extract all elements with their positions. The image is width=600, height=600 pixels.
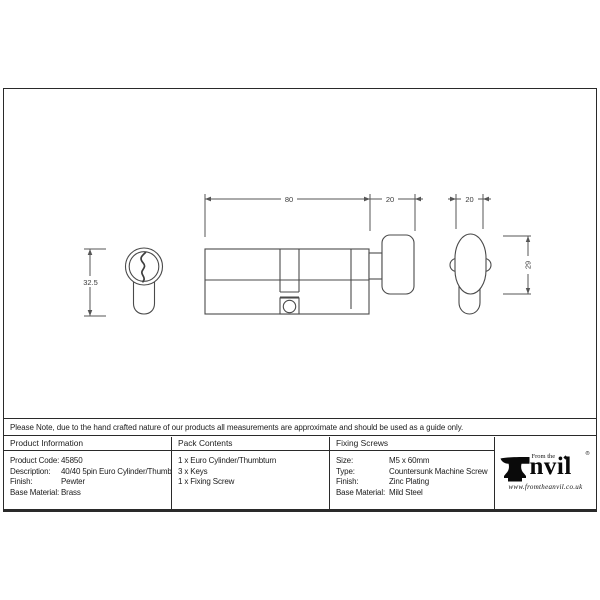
row-value: Countersunk Machine Screw: [389, 467, 488, 478]
disclaimer-bar: Please Note, due to the hand crafted nat…: [4, 418, 596, 436]
pack-item: 1 x Fixing Screw: [178, 477, 330, 488]
fixing-screw-hole: [283, 300, 295, 312]
row-value: 45850: [61, 456, 83, 467]
brand-name: nvil: [530, 454, 572, 480]
dim-total-length: 80: [205, 193, 370, 237]
disclaimer-text: Please Note, due to the hand crafted nat…: [4, 419, 596, 436]
table-row: Description: 40/40 5pin Euro Cylinder/Th…: [10, 467, 171, 478]
fixing-screws-header: Fixing Screws: [330, 437, 495, 451]
table-row: Finish: Zinc Plating: [336, 477, 495, 488]
dim-thumbturn-depth: 20: [370, 193, 423, 231]
pack-contents-header: Pack Contents: [172, 437, 330, 451]
row-value: Brass: [61, 488, 81, 499]
thumbturn-knob-side: [382, 235, 414, 294]
row-value: Zinc Plating: [389, 477, 429, 488]
drawing-svg: 32.5 80: [4, 89, 596, 418]
end-view: 20 29: [448, 193, 535, 314]
spec-table: Product Information Product Code: 45850 …: [4, 437, 596, 509]
product-information-header: Product Information: [4, 437, 171, 451]
anvil-icon: [498, 457, 530, 483]
dim-label-29: 29: [523, 261, 532, 269]
table-row: Product Code: 45850: [10, 456, 171, 467]
dim-label-80: 80: [285, 195, 293, 204]
dim-label-32-5: 32.5: [83, 278, 98, 287]
pack-contents-column: Pack Contents 1 x Euro Cylinder/Thumbtur…: [171, 437, 330, 509]
thumbturn-knob-end: [455, 234, 486, 294]
row-value: Pewter: [61, 477, 85, 488]
row-label: Base Material:: [10, 488, 61, 499]
row-label: Size:: [336, 456, 389, 467]
logo-website: www.fromtheanvil.co.uk: [498, 483, 594, 491]
thumbturn-neck: [369, 253, 382, 279]
pack-item: 3 x Keys: [178, 467, 330, 478]
datasheet-page: { "drawing": { "dim_total_length": "80",…: [0, 0, 600, 600]
row-value: 40/40 5pin Euro Cylinder/Thumbturn: [61, 467, 171, 478]
row-value: M5 x 60mm: [389, 456, 429, 467]
row-label: Base Material:: [336, 488, 389, 499]
row-label: Type:: [336, 467, 389, 478]
pack-item: 1 x Euro Cylinder/Thumbturn: [178, 456, 330, 467]
brand-row: From the ® nvil: [498, 452, 594, 484]
row-label: Description:: [10, 467, 61, 478]
dim-profile-height: 32.5: [80, 249, 106, 316]
table-row: Type: Countersunk Machine Screw: [336, 467, 495, 478]
dim-label-20-end: 20: [465, 195, 473, 204]
row-label: Product Code:: [10, 456, 61, 467]
row-value: Mild Steel: [389, 488, 423, 499]
registered-mark: ®: [586, 451, 590, 457]
technical-drawing: 32.5 80: [4, 89, 596, 418]
fixing-screws-column: Fixing Screws Size: M5 x 60mm Type: Coun…: [329, 437, 495, 509]
row-label: Finish:: [10, 477, 61, 488]
front-view: 32.5: [80, 248, 163, 316]
side-view: 80 20: [205, 193, 423, 314]
row-label: Finish:: [336, 477, 389, 488]
anvil-logo: From the ® nvil www.fromtheanvil.co.uk: [498, 452, 594, 494]
dim-knob-height: 29: [503, 236, 535, 294]
datasheet-frame: 32.5 80: [3, 88, 597, 512]
table-row: Finish: Pewter: [10, 477, 171, 488]
dim-knob-width: 20: [448, 193, 491, 229]
dim-label-20-side: 20: [386, 195, 394, 204]
brand-column: From the ® nvil www.fromtheanvil.co.uk: [494, 437, 596, 509]
table-row: Base Material: Mild Steel: [336, 488, 495, 499]
table-row: Base Material: Brass: [10, 488, 171, 499]
table-row: Size: M5 x 60mm: [336, 456, 495, 467]
product-information-column: Product Information Product Code: 45850 …: [4, 437, 171, 509]
